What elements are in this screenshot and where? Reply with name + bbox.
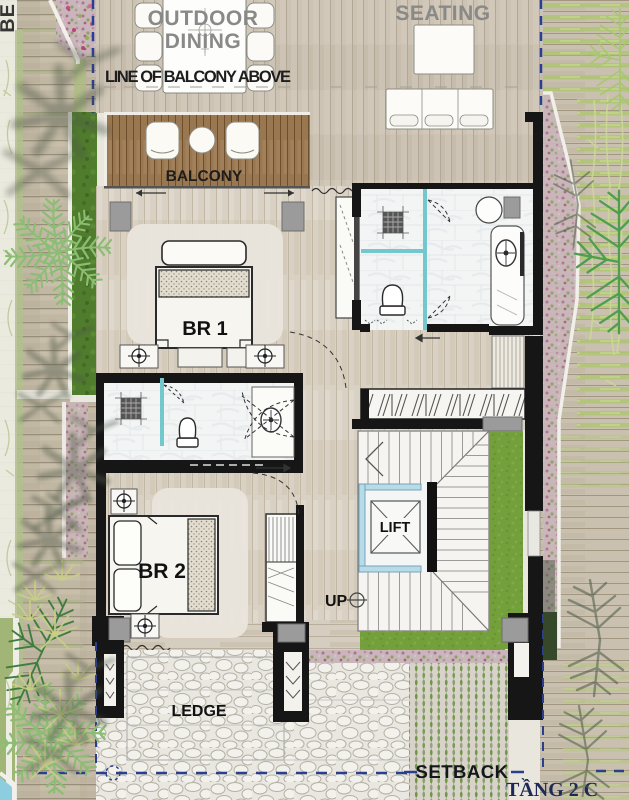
svg-text:LIFT: LIFT xyxy=(380,520,411,536)
svg-text:LEDGE: LEDGE xyxy=(171,703,226,720)
svg-text:BE: BE xyxy=(0,3,19,33)
svg-text:LINE OF BALCONY ABOVE: LINE OF BALCONY ABOVE xyxy=(105,68,291,86)
svg-text:DINING: DINING xyxy=(165,30,242,53)
svg-text:SETBACK: SETBACK xyxy=(416,761,509,782)
svg-text:OUTDOOR: OUTDOOR xyxy=(148,7,259,30)
svg-text:UP: UP xyxy=(325,593,348,610)
svg-text:BR 1: BR 1 xyxy=(182,318,228,340)
svg-text:BALCONY: BALCONY xyxy=(166,168,243,185)
svg-text:SEATING: SEATING xyxy=(395,2,490,25)
svg-text:BR 2: BR 2 xyxy=(138,560,186,583)
